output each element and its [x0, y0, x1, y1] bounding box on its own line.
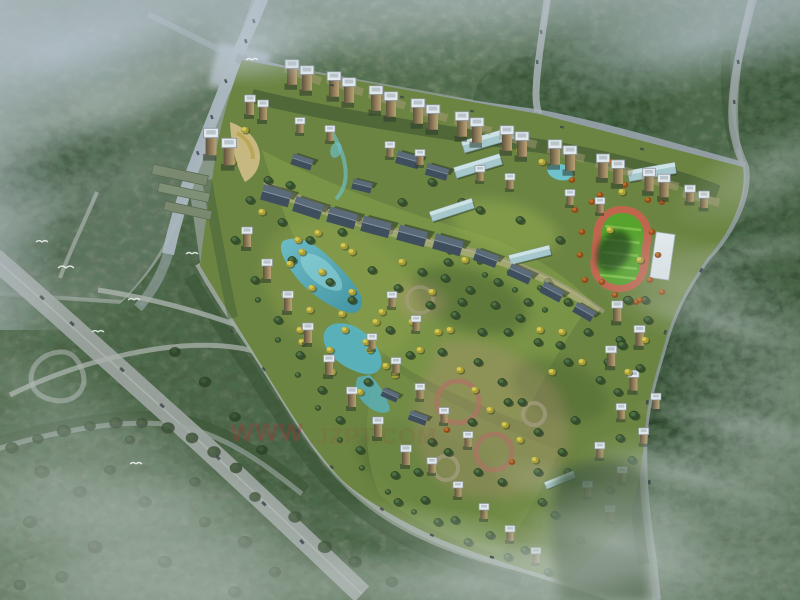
svg-text:WWW: WWW	[230, 419, 304, 447]
svg-text:.JZPT.COM: .JZPT.COM	[308, 423, 437, 449]
